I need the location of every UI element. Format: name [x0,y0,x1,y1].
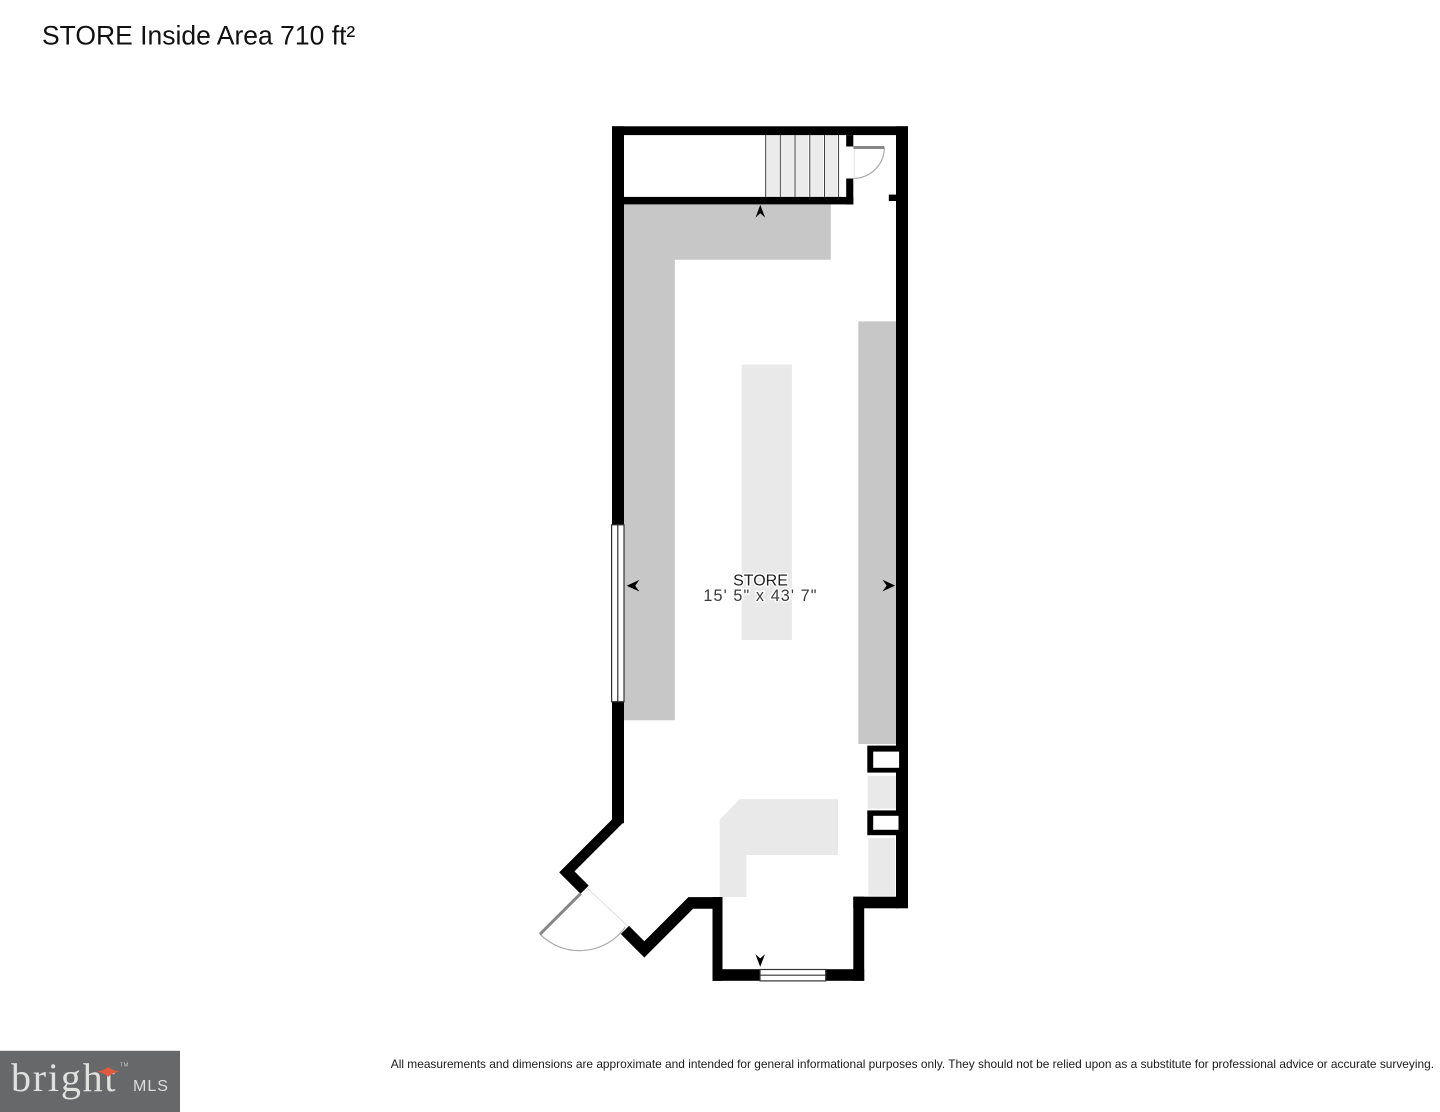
svg-text:STORE Inside Area 710 ft²: STORE Inside Area 710 ft² [42,21,355,51]
svg-text:All measurements and dimension: All measurements and dimensions are appr… [391,1057,1434,1071]
svg-text:bright: bright [11,1055,117,1100]
svg-text:MLS: MLS [133,1078,169,1095]
svg-text:15' 5" x 43' 7": 15' 5" x 43' 7" [703,587,817,605]
svg-text:TM: TM [120,1063,129,1069]
